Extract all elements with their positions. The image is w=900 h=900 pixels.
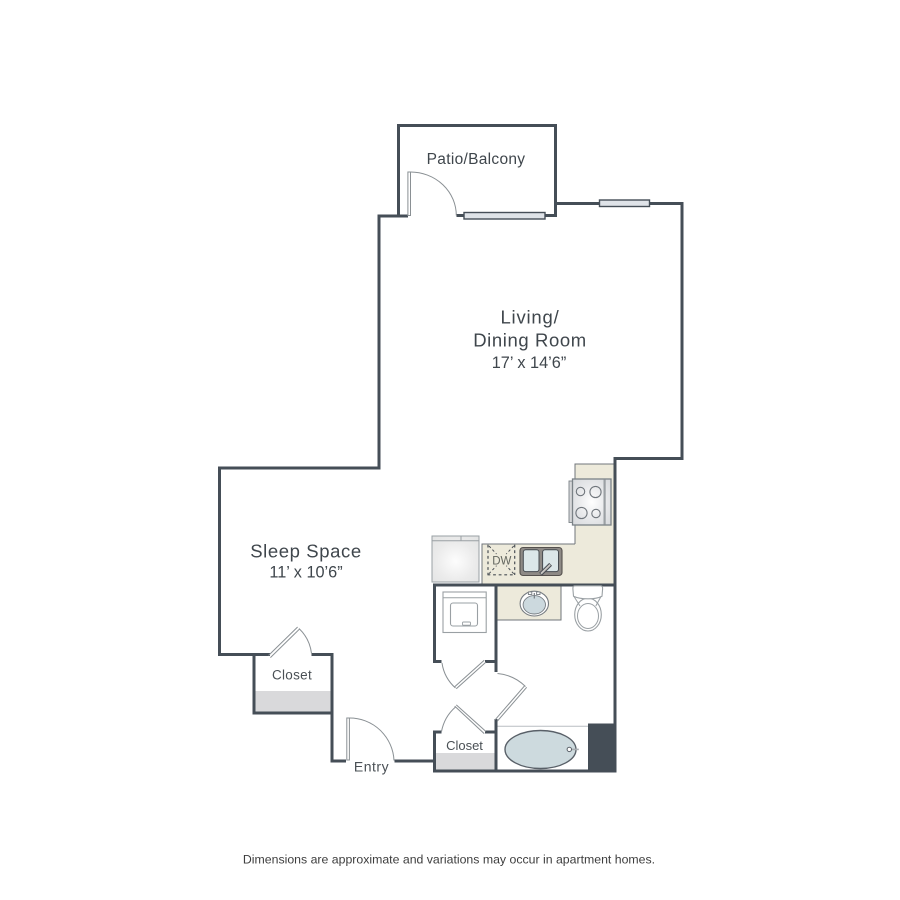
svg-text:Closet: Closet	[446, 738, 483, 753]
svg-text:Dining Room: Dining Room	[473, 329, 587, 350]
svg-text:Entry: Entry	[354, 759, 389, 775]
svg-text:17’ x 14’6”: 17’ x 14’6”	[492, 354, 567, 372]
svg-text:Patio/Balcony: Patio/Balcony	[427, 151, 526, 168]
svg-text:Living/: Living/	[500, 307, 559, 328]
svg-text:11’ x 10’6”: 11’ x 10’6”	[269, 564, 342, 582]
svg-text:Closet: Closet	[272, 668, 312, 683]
svg-text:DW: DW	[492, 555, 511, 567]
svg-text:Sleep Space: Sleep Space	[250, 541, 362, 562]
svg-text:Dimensions are approximate and: Dimensions are approximate and variation…	[243, 853, 655, 867]
